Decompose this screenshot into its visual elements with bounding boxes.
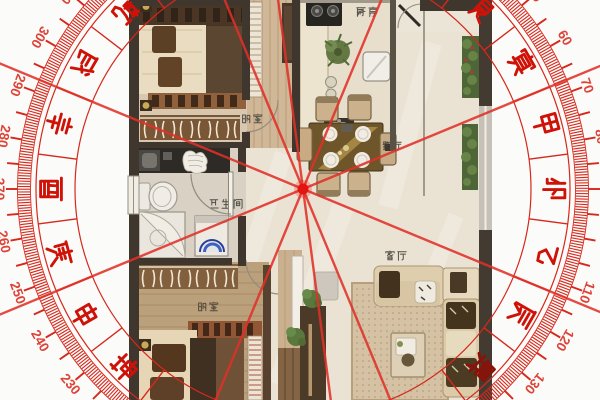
- svg-text:270: 270: [0, 178, 7, 201]
